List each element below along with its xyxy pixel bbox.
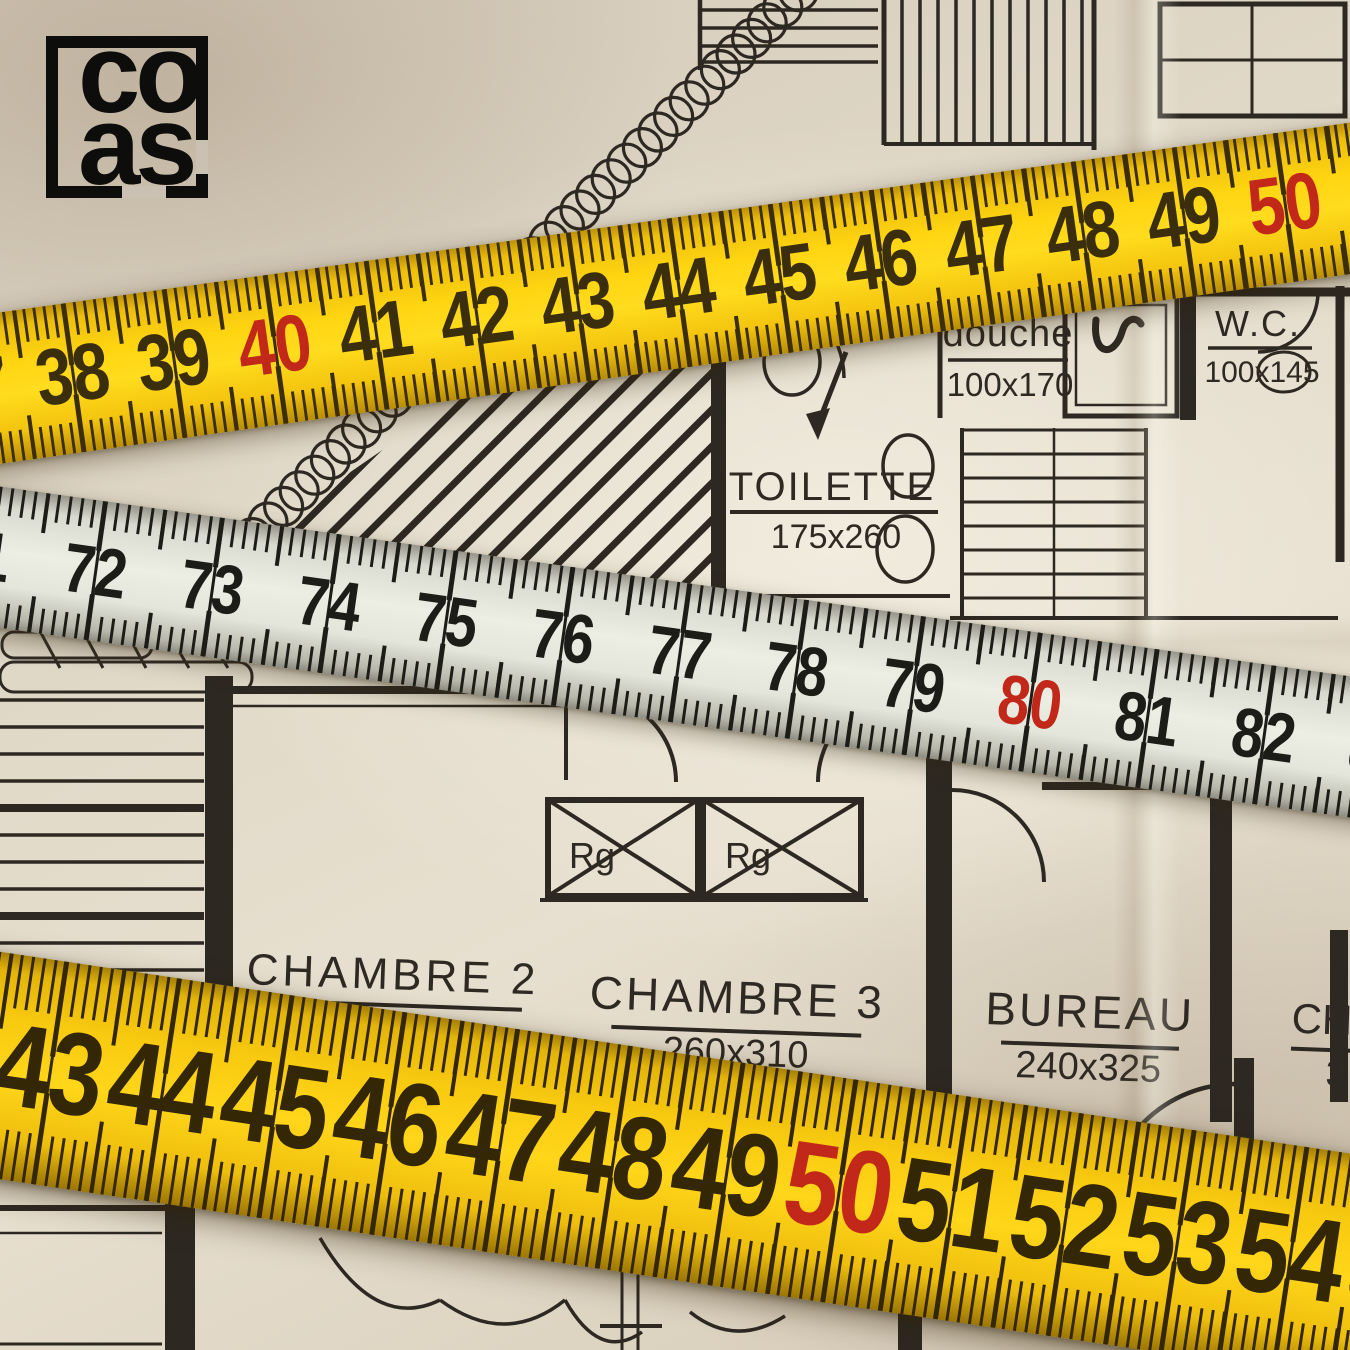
ruler-number: 79 (876, 642, 950, 730)
label-bureau-dims: 240x325 (1015, 1044, 1162, 1091)
ruler-number: 37 (0, 338, 14, 439)
label-rg-1: Rg (569, 835, 615, 876)
ruler-number: 48 (550, 1079, 677, 1229)
left-bay-garage (0, 622, 252, 1012)
label-rg-2: Rg (725, 835, 771, 876)
label-wc: W.C. (1215, 303, 1301, 344)
ruler-number: 43 (0, 995, 114, 1145)
label-douche-dims: 100x170 (947, 366, 1074, 403)
ruler-number: 72 (58, 527, 132, 615)
logo-text-line2: as (78, 90, 193, 202)
ruler-number: 49 (1141, 168, 1227, 269)
storage-rg-boxes: Rg Rg (540, 800, 868, 900)
ruler-number: 43 (535, 253, 621, 354)
ruler-number: 82 (1227, 691, 1301, 779)
ruler-number: 50 (776, 1113, 903, 1263)
ruler-number: 51 (888, 1130, 1015, 1280)
logo-frame-left (46, 36, 58, 198)
ruler-number: 78 (759, 625, 833, 713)
label-toilette: TOILETTE (729, 465, 935, 509)
ruler-number: 48 (1040, 182, 1126, 283)
label-toilette-dims: 175x260 (771, 518, 901, 556)
ruler-number: 40 (232, 296, 318, 397)
ruler-number: 39 (131, 310, 217, 411)
ruler-number: 50 (1242, 154, 1328, 255)
ruler-number: 81 (1110, 674, 1184, 762)
ruler-number: 42 (434, 267, 520, 368)
ruler-number: 47 (437, 1063, 564, 1213)
photo-rulers-on-floorplan: douche 100x170 W.C. 100x145 TOILETTE 175… (0, 0, 1350, 1350)
ruler-number: 46 (838, 211, 924, 312)
ruler-number: 53 (1114, 1164, 1241, 1314)
ruler-number: 47 (939, 196, 1025, 297)
ruler-number: 52 (1001, 1147, 1128, 1297)
ruler-number: 54 (1227, 1180, 1350, 1330)
ruler-number: 76 (526, 592, 600, 680)
ruler-number: 71 (0, 510, 16, 598)
logo-frame-gap (196, 140, 208, 174)
ruler-number: 75 (409, 576, 483, 664)
ruler-number: 49 (663, 1096, 790, 1246)
ruler-number: 77 (642, 609, 716, 697)
ruler-number: 46 (325, 1046, 452, 1196)
walls-bottom-left (0, 1202, 195, 1350)
label-bureau: BUREAU (984, 982, 1195, 1041)
label-chambre4-dims: 3 (1325, 1053, 1348, 1096)
ruler-number: 73 (175, 543, 249, 631)
ruler-number: 41 (333, 282, 419, 383)
ruler-number: 44 (636, 239, 722, 340)
ruler-number: 38 (30, 324, 116, 425)
ruler-number: 44 (99, 1012, 226, 1162)
label-chambre4: CH (1291, 995, 1350, 1044)
ruler-number: 80 (993, 658, 1067, 746)
ruler-number: 45 (212, 1029, 339, 1179)
ruler-number: 74 (292, 559, 366, 647)
label-chambre3: CHAMBRE 3 (589, 966, 886, 1028)
door-arrow (806, 408, 830, 440)
staircase-center (950, 428, 1338, 618)
ruler-number: 45 (737, 225, 823, 326)
ruler-centimeter-cell: 82 (1254, 666, 1350, 821)
